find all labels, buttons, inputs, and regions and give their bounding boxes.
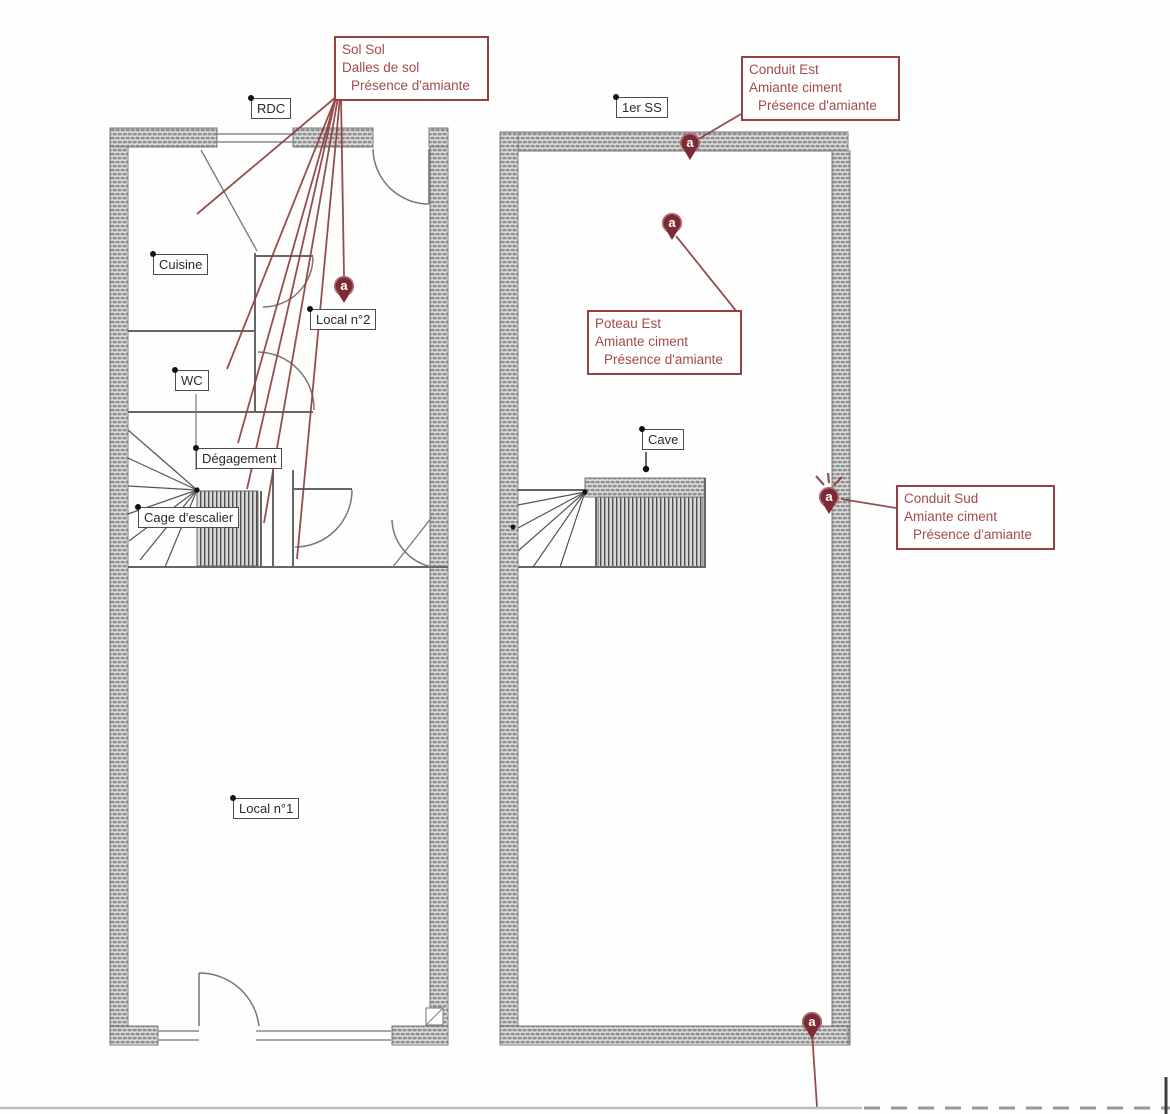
asbestos-marker-letter: a [334, 276, 354, 296]
room-label-local-2: Local n°2 [310, 309, 376, 330]
red-annotation-lines [197, 97, 896, 1107]
room-label-cave: Cave [642, 429, 684, 450]
annotation-box-poteau-est: Poteau Est Amiante ciment Présence d'ami… [587, 310, 742, 375]
annotation-box-sol-sol: Sol Sol Dalles de sol Présence d'amiante [334, 36, 489, 101]
asbestos-marker-local-2: a [334, 276, 354, 306]
floor-label-rdc: RDC [251, 98, 291, 119]
annotation-line: Conduit Est [749, 61, 891, 79]
room-label-cuisine: Cuisine [153, 254, 208, 275]
annotation-box-conduit-sud: Conduit Sud Amiante ciment Présence d'am… [896, 485, 1055, 550]
annotation-line: Amiante ciment [749, 79, 891, 97]
room-label-degagement: Dégagement [196, 448, 282, 469]
annotation-line: Présence d'amiante [749, 97, 891, 115]
asbestos-marker-letter: a [819, 487, 839, 507]
annotation-line: Sol Sol [342, 41, 480, 59]
asbestos-marker-conduit-est: a [680, 133, 700, 163]
asbestos-marker-letter: a [662, 213, 682, 233]
annotation-box-conduit-est: Conduit Est Amiante ciment Présence d'am… [741, 56, 900, 121]
room-label-wc: WC [175, 370, 209, 391]
annotation-line: Amiante ciment [595, 333, 733, 351]
sheet-bottom-edge [0, 1077, 1170, 1114]
asbestos-marker-sud-bas: a [802, 1012, 822, 1042]
left-plan-doors [196, 149, 443, 1026]
room-label-cage-escalier: Cage d'escalier [138, 507, 239, 528]
asbestos-marker-letter: a [680, 133, 700, 153]
room-label-local-1: Local n°1 [233, 798, 299, 819]
annotation-line: Présence d'amiante [342, 77, 480, 95]
right-plan-stairs [511, 452, 706, 567]
annotation-line: Présence d'amiante [595, 351, 733, 369]
right-plan-walls [500, 132, 850, 1045]
annotation-line: Amiante ciment [904, 508, 1046, 526]
annotation-line: Dalles de sol [342, 59, 480, 77]
asbestos-marker-letter: a [802, 1012, 822, 1032]
annotation-line: Poteau Est [595, 315, 733, 333]
floor-plan-document: RDC 1er SS Cuisine Local n°2 WC Dégageme… [0, 0, 1170, 1114]
annotation-line: Conduit Sud [904, 490, 1046, 508]
floor-label-1er-ss: 1er SS [616, 97, 668, 118]
annotation-line: Présence d'amiante [904, 526, 1046, 544]
plan-drawing [0, 0, 1170, 1114]
asbestos-marker-conduit-sud: a [819, 487, 839, 517]
asbestos-marker-poteau-est: a [662, 213, 682, 243]
